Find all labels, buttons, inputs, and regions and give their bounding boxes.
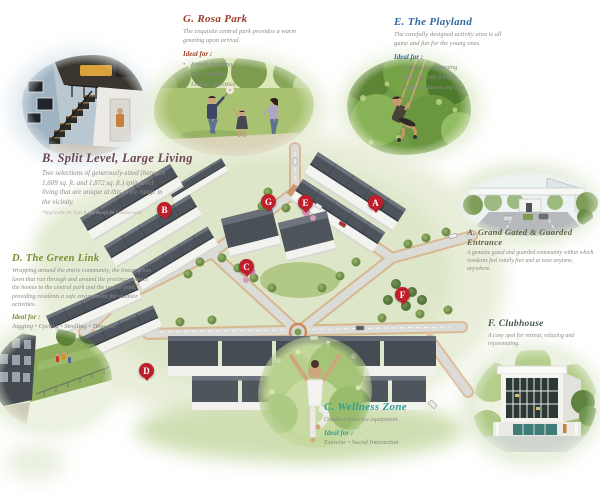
- section-title: E. The Playland: [394, 16, 536, 28]
- ideal-for-label: Ideal for :: [183, 50, 303, 58]
- map-marker-d: D: [139, 363, 154, 378]
- section-title: A. Grand Gated & Guarded Entrance: [467, 227, 598, 247]
- marker-letter: A: [372, 198, 379, 208]
- list-item: Family bonding: [183, 60, 303, 70]
- marker-letter: G: [265, 197, 272, 207]
- list-item: Get-togethers: [183, 70, 303, 80]
- section-description: A cosy spot for retreat, relaxing and re…: [488, 332, 576, 349]
- section-description: Outdoor exercise equipment.: [324, 416, 462, 425]
- section-title: C. Wellness Zone: [324, 401, 462, 413]
- split-level-interior-photo: [22, 55, 146, 157]
- section-footnote: *Applicable for Type B and except for Go…: [42, 211, 207, 216]
- section-entrance: A. Grand Gated & Guarded Entrance A genu…: [467, 227, 598, 274]
- marker-letter: F: [400, 290, 406, 300]
- list-item: Meeting with friends: [394, 73, 536, 83]
- section-title: F. Clubhouse: [488, 319, 596, 329]
- ideal-for-label: Ideal for :: [394, 53, 536, 61]
- section-description: Wrapping around the entire community, th…: [12, 267, 154, 310]
- clubhouse-render-photo: [473, 350, 597, 458]
- ideal-for-list: Playing and learning Meeting with friend…: [394, 63, 536, 93]
- masterplan-page: G. Rosa Park The exquisite central park …: [0, 0, 600, 492]
- section-clubhouse: F. Clubhouse A cosy spot for retreat, re…: [488, 319, 596, 349]
- ideal-for-list: Family bonding Get-togethers Leisure act…: [183, 60, 303, 90]
- section-wellness: C. Wellness Zone Outdoor exercise equipm…: [324, 401, 462, 446]
- section-description: A genuine gated and guarded community wi…: [467, 250, 598, 274]
- map-marker-g: G: [261, 194, 276, 209]
- marker-letter: C: [243, 262, 250, 272]
- list-item: Playing and learning: [394, 63, 536, 73]
- map-marker-a: A: [368, 195, 383, 210]
- section-playland: E. The Playland The carefully designed a…: [394, 16, 536, 93]
- section-green-link: D. The Green Link Wrapping around the en…: [12, 253, 154, 330]
- ideal-for-label: Ideal for :: [324, 429, 462, 437]
- section-description: Two selections of generously-sized (betw…: [42, 169, 167, 208]
- section-title: D. The Green Link: [12, 253, 154, 264]
- marker-letter: B: [161, 205, 167, 215]
- marker-letter: D: [143, 366, 150, 376]
- marker-letter: E: [302, 198, 308, 208]
- list-item: Leisure activities: [183, 80, 303, 90]
- section-title: G. Rosa Park: [183, 13, 303, 25]
- map-marker-b: B: [157, 202, 172, 217]
- section-title: B. Split Level, Large Living: [42, 151, 207, 166]
- map-marker-c: C: [239, 259, 254, 274]
- map-marker-e: E: [298, 195, 313, 210]
- ideal-for-inline: Jogging • Cycling • Strolling • Time-out: [12, 323, 154, 330]
- section-split-level: B. Split Level, Large Living Two selecti…: [42, 151, 207, 216]
- ideal-for-label: Ideal for :: [12, 314, 154, 321]
- list-item: Outdoor games and fun: [394, 83, 536, 93]
- map-marker-f: F: [395, 287, 410, 302]
- section-description: The carefully designed activity area is …: [394, 31, 512, 49]
- section-rosa-park: G. Rosa Park The exquisite central park …: [183, 13, 303, 90]
- section-description: The exquisite central park provides a wa…: [183, 28, 303, 46]
- ideal-for-inline: Exercise • Social Interaction: [324, 439, 462, 446]
